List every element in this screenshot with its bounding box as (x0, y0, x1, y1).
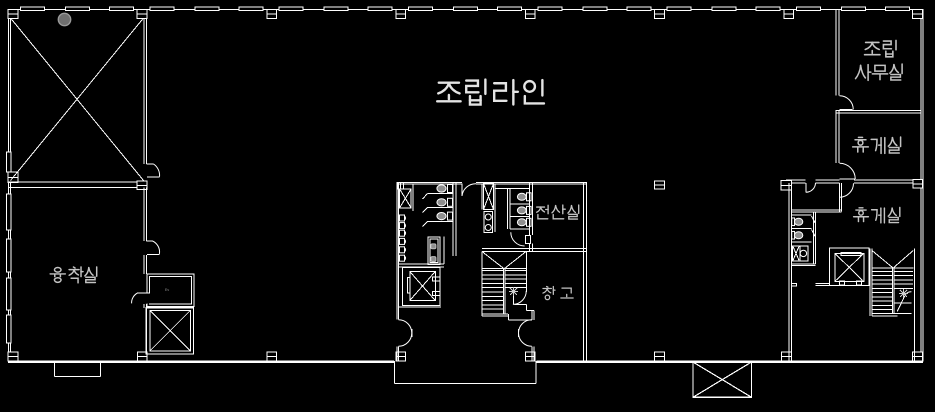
svg-text:Ev: Ev (165, 288, 169, 292)
